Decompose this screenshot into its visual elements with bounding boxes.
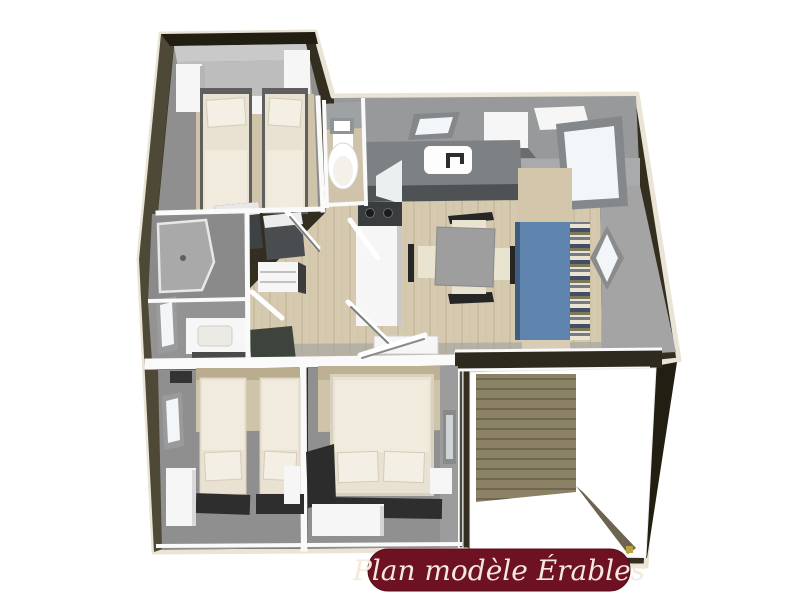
vanity-sink [198, 326, 232, 346]
bed-sheet [262, 380, 298, 450]
wall-line [326, 203, 366, 205]
shower-tray [158, 220, 214, 292]
bed-twin-1 [200, 88, 252, 214]
caption-banner: Plan modèle Érables [352, 549, 645, 591]
floorplan-image: Plan modèle Érables [0, 0, 800, 600]
bed-footboard-mat [196, 493, 251, 515]
wall-line [150, 299, 246, 301]
window-glass [564, 126, 619, 201]
bed-pillow [383, 451, 424, 482]
burner [384, 209, 393, 218]
shower-room [148, 212, 246, 302]
banner-label: Plan modèle Érables [352, 554, 645, 587]
chair-seat [494, 248, 510, 280]
wardrobe [166, 468, 196, 526]
bed-sheet [267, 150, 303, 210]
bed-sheet [335, 380, 429, 452]
bed-sheet [205, 150, 247, 210]
sofa-seat [520, 222, 570, 340]
bedroom-twin-top [158, 44, 322, 214]
wall-line [303, 366, 304, 548]
wc-room [324, 102, 364, 206]
bedroom-window [162, 392, 184, 450]
bench-chest [312, 504, 384, 536]
floor-rug-dark [306, 444, 336, 508]
dresser-side [298, 262, 306, 294]
skylight-window [408, 112, 460, 140]
sofa-cushions [570, 222, 590, 340]
skylight-glass [415, 117, 453, 135]
bed-pillow [268, 98, 302, 127]
bed-pillow [206, 98, 246, 128]
wall-line [156, 544, 462, 546]
wardrobe-side [192, 470, 196, 526]
wardrobe [176, 64, 202, 112]
toilet-cistern-lid [334, 121, 350, 131]
picture-glass [446, 415, 453, 459]
bedroom-twin-bottom [158, 368, 304, 550]
side-cabinet [518, 168, 572, 222]
kitchen-peninsula-side [397, 226, 402, 326]
top-left-exterior-wall [161, 32, 318, 46]
bathroom-window [156, 296, 178, 354]
wall-line [247, 212, 248, 362]
bed-twin-1 [196, 378, 251, 515]
chair-back [408, 244, 414, 282]
bedroom-double [306, 366, 458, 548]
wardrobe [284, 50, 310, 94]
window-glass [166, 398, 180, 443]
deck-corner-post [626, 546, 633, 553]
bed-pillow [337, 451, 378, 482]
wall-picture [443, 410, 456, 464]
window-glass [160, 302, 174, 347]
bed-sheet [202, 380, 244, 450]
chair-seat [418, 246, 436, 278]
bed-twin-2 [262, 88, 308, 214]
shower-drain [180, 255, 186, 261]
bench-side [380, 506, 384, 536]
wall-line [455, 349, 662, 351]
burner [366, 209, 375, 218]
toilet-seat [333, 156, 353, 186]
dining-table [435, 227, 495, 287]
nightstand [430, 468, 452, 494]
dresser [258, 262, 298, 292]
terrace [470, 368, 656, 556]
bed-pillow [204, 451, 241, 481]
floorplan-svg: Plan modèle Érables [0, 0, 800, 600]
nightstand [284, 466, 300, 504]
dark-item [170, 371, 192, 383]
terrace-deck-planks [476, 374, 576, 502]
